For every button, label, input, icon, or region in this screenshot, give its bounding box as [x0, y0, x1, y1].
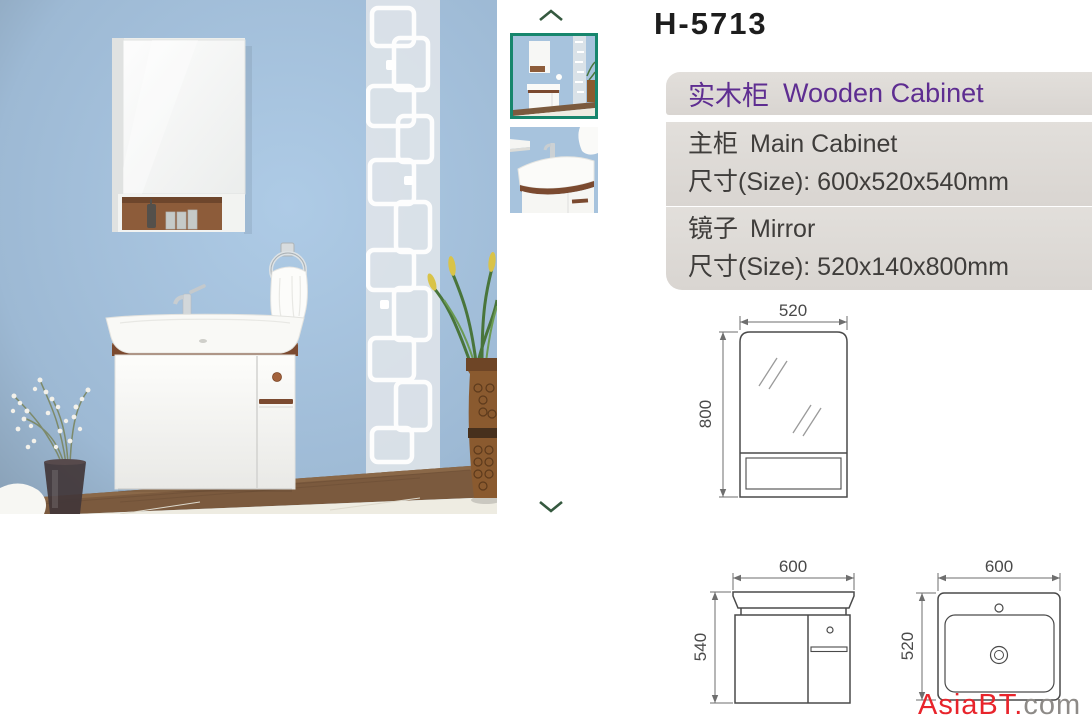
watermark-brand: AsiaBT [918, 689, 1014, 721]
spec-band-mirror: 镜子Mirror 尺寸(Size): 520x140x800mm [666, 207, 1092, 290]
vanity-unit [106, 286, 304, 492]
basin-depth-dimension: 520 [898, 632, 917, 660]
privacy-screen [366, 0, 440, 476]
basin-width-dimension: 600 [985, 557, 1013, 576]
mirror-dimension-diagram: 520 800 [675, 290, 900, 517]
thumbnails-scroll-down-button[interactable] [533, 495, 569, 517]
door-knob [273, 373, 282, 382]
cabinet-height-dimension: 540 [691, 633, 710, 661]
mirror-width-dimension: 520 [779, 301, 807, 320]
thumbnail-product-overview[interactable] [510, 33, 598, 119]
chevron-up-icon [533, 4, 569, 26]
mirror-size: 尺寸(Size): 520x140x800mm [688, 248, 1092, 286]
main-cabinet-name: 主柜Main Cabinet [688, 125, 1092, 163]
basin [106, 314, 304, 353]
product-code-title: H-5713 [654, 6, 768, 42]
spec-band-main-cabinet: 主柜Main Cabinet 尺寸(Size): 600x520x540mm [666, 122, 1092, 206]
thumbnail-basin-closeup[interactable] [510, 127, 598, 213]
watermark-tld: com [1023, 689, 1081, 721]
mirror-cabinet [112, 38, 252, 234]
cabinet-width-dimension: 600 [779, 557, 807, 576]
spec-header-zh: 实木柜 [688, 74, 769, 113]
site-watermark: AsiaBT.com [918, 689, 1081, 722]
cabinet-dimension-diagram: 600 540 [688, 545, 868, 715]
spec-header-en: Wooden Cabinet [783, 78, 984, 109]
main-product-image [0, 0, 497, 514]
spec-band-header: 实木柜 Wooden Cabinet [666, 72, 1092, 115]
thumbnails-scroll-up-button[interactable] [533, 4, 569, 26]
main-cabinet-size: 尺寸(Size): 600x520x540mm [688, 163, 1092, 201]
watermark-dot: . [1014, 689, 1023, 721]
mirror-height-dimension: 800 [696, 400, 715, 428]
mirror-name: 镜子Mirror [688, 210, 1092, 248]
chevron-down-icon [533, 495, 569, 517]
